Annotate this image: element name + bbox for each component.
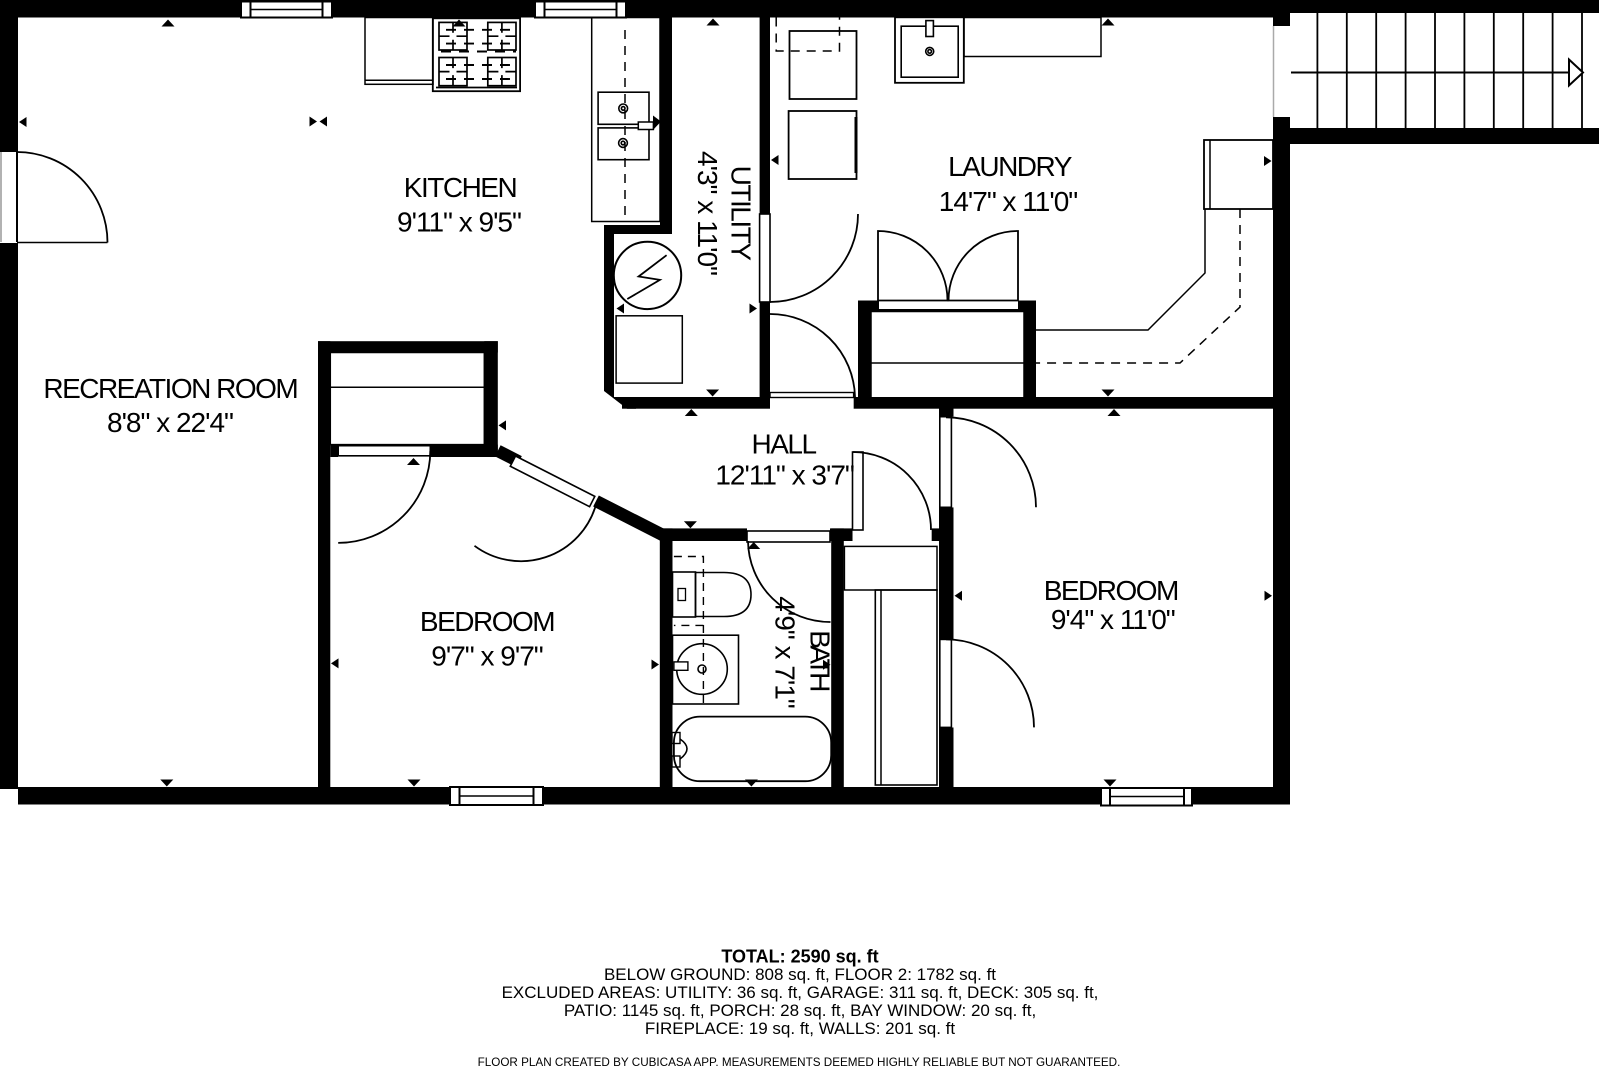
svg-text:BEDROOM: BEDROOM: [420, 606, 554, 637]
svg-text:8'8" x 22'4": 8'8" x 22'4": [107, 407, 233, 438]
svg-text:9'11" x 9'5": 9'11" x 9'5": [397, 207, 521, 238]
svg-text:EXCLUDED AREAS: UTILITY: 36 sq: EXCLUDED AREAS: UTILITY: 36 sq. ft, GARA…: [502, 983, 1099, 1002]
svg-text:BEDROOM: BEDROOM: [1044, 575, 1178, 606]
svg-text:4'9" x 7'1": 4'9" x 7'1": [770, 596, 801, 707]
svg-text:FLOOR PLAN CREATED BY CUBICASA: FLOOR PLAN CREATED BY CUBICASA APP. MEAS…: [478, 1056, 1121, 1069]
svg-text:12'11" x 3'7": 12'11" x 3'7": [715, 460, 854, 491]
svg-text:LAUNDRY: LAUNDRY: [948, 151, 1073, 182]
svg-text:FIREPLACE: 19 sq. ft, WALLS: 2: FIREPLACE: 19 sq. ft, WALLS: 201 sq. ft: [645, 1019, 956, 1038]
svg-text:4'3" x 11'0": 4'3" x 11'0": [692, 151, 723, 275]
svg-text:PATIO: 1145 sq. ft, PORCH: 28: PATIO: 1145 sq. ft, PORCH: 28 sq. ft, BA…: [564, 1001, 1036, 1020]
svg-text:BELOW GROUND: 808 sq. ft, FLOO: BELOW GROUND: 808 sq. ft, FLOOR 2: 1782 …: [604, 965, 996, 984]
svg-text:9'7" x 9'7": 9'7" x 9'7": [431, 641, 542, 672]
svg-text:BATH: BATH: [805, 630, 836, 690]
svg-text:HALL: HALL: [751, 429, 816, 460]
svg-text:14'7" x 11'0": 14'7" x 11'0": [939, 186, 1078, 217]
svg-text:KITCHEN: KITCHEN: [404, 172, 516, 203]
svg-text:RECREATION ROOM: RECREATION ROOM: [43, 373, 297, 404]
svg-text:UTILITY: UTILITY: [726, 166, 757, 262]
svg-text:TOTAL: 2590 sq. ft: TOTAL: 2590 sq. ft: [721, 947, 878, 967]
svg-text:9'4" x 11'0": 9'4" x 11'0": [1051, 604, 1175, 635]
